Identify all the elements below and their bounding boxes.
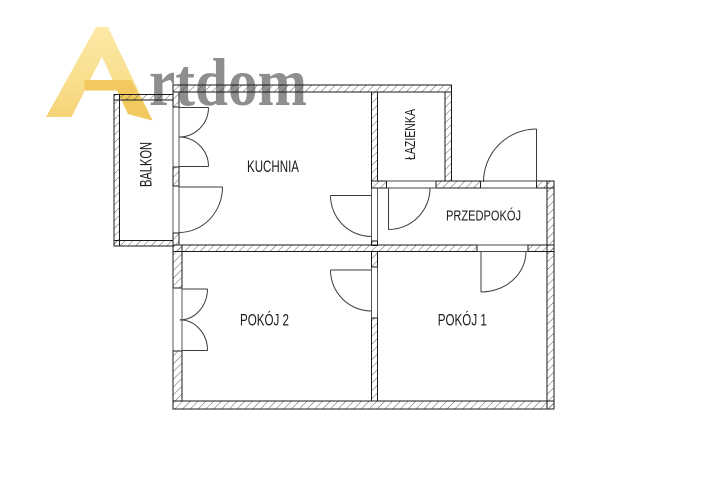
svg-text:KUCHNIA: KUCHNIA: [247, 158, 299, 176]
svg-text:PRZEDPOKÓJ: PRZEDPOKÓJ: [446, 208, 521, 225]
svg-text:ŁAZIENKA: ŁAZIENKA: [402, 109, 419, 160]
svg-text:BALKON: BALKON: [136, 142, 155, 187]
svg-text:POKÓJ 1: POKÓJ 1: [438, 310, 487, 329]
svg-text:POKÓJ 2: POKÓJ 2: [240, 310, 289, 329]
